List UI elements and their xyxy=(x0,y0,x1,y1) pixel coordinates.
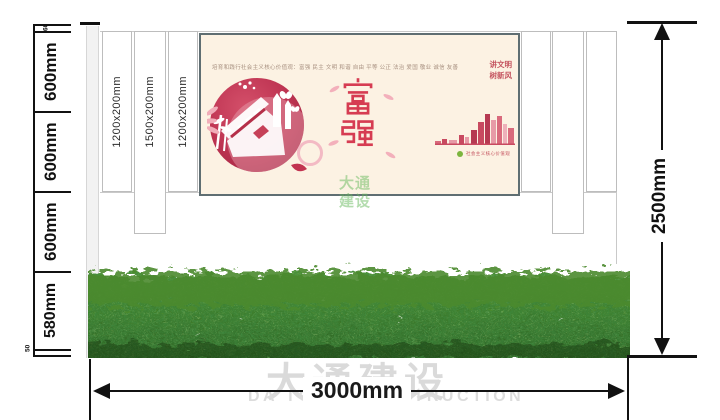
panel-slat-3: 1200x200mm xyxy=(168,31,198,192)
leaf-decor xyxy=(328,139,340,147)
dim-tick xyxy=(33,271,71,273)
dim-tick xyxy=(33,24,71,26)
dim-tick xyxy=(33,191,71,193)
dim-label-50: 50 xyxy=(22,341,34,356)
arrow-up-icon xyxy=(654,23,670,40)
dim-ext-right xyxy=(627,358,629,420)
dim-tick xyxy=(80,22,100,25)
dim-tick xyxy=(33,349,71,351)
poster-slogan-line1: 讲文明 xyxy=(490,59,513,70)
leaf-decor xyxy=(385,151,397,160)
dim-tick xyxy=(33,355,71,357)
hedge-photo xyxy=(88,262,630,358)
city-skyline-illustration xyxy=(435,113,515,146)
panel-slat-5 xyxy=(552,31,584,234)
panel-slat-1: 1200x200mm xyxy=(102,31,132,192)
green-dot-icon xyxy=(457,151,463,157)
fu-char-glyph xyxy=(339,77,377,115)
elevation-drawing: 1200x200mm 1500x200mm 1200x200mm 培育和践行社会… xyxy=(0,0,720,420)
dim-tick xyxy=(33,31,71,33)
theme-characters xyxy=(339,77,383,159)
qiang-char-glyph xyxy=(339,118,377,156)
dim-label-600: 600mm xyxy=(38,115,64,188)
dim-label-600: 600mm xyxy=(38,195,64,268)
dim-label-3000: 3000mm xyxy=(303,377,411,404)
panel-size-label: 1200x200mm xyxy=(177,76,189,148)
dim-label-2500: 2500mm xyxy=(645,150,675,242)
poster-footnote: 社会主义核心价值观 xyxy=(457,151,510,157)
culture-wall-poster: 培育和践行社会主义核心价值观：富强 民主 文明 和谐 自由 平等 公正 法治 爱… xyxy=(199,33,520,196)
dim-label-600: 600mm xyxy=(38,35,64,108)
dim-label-580: 580mm xyxy=(38,275,64,346)
stamp-line1: 大通 xyxy=(337,175,373,193)
poster-slogan-line2: 树新风 xyxy=(490,70,513,81)
panel-slat-2: 1500x200mm xyxy=(134,31,166,234)
panel-slat-4 xyxy=(521,31,551,192)
panel-slat-6 xyxy=(586,31,617,192)
dim-tick xyxy=(33,111,71,113)
arrow-left-icon xyxy=(93,383,110,399)
dim-ext-left xyxy=(89,359,91,420)
panel-size-label: 1500x200mm xyxy=(144,76,156,148)
arrow-right-icon xyxy=(608,383,625,399)
leaf-decor xyxy=(383,93,395,101)
poster-footnote-text: 社会主义核心价值观 xyxy=(466,151,510,157)
papercut-circle-illustration xyxy=(207,71,329,189)
panel-size-label: 1200x200mm xyxy=(111,76,123,148)
stamp-line2: 建设 xyxy=(337,193,373,211)
poster-header-text: 培育和践行社会主义核心价值观：富强 民主 文明 和谐 自由 平等 公正 法治 爱… xyxy=(212,63,458,71)
wall-right-edge xyxy=(616,192,617,264)
poster-slogan: 讲文明 树新风 xyxy=(490,59,513,81)
dim-tick xyxy=(627,355,697,358)
company-stamp-watermark: 大通 建设 xyxy=(337,175,373,211)
dim-label-60: 60 xyxy=(40,18,52,36)
arrow-down-icon xyxy=(654,338,670,355)
